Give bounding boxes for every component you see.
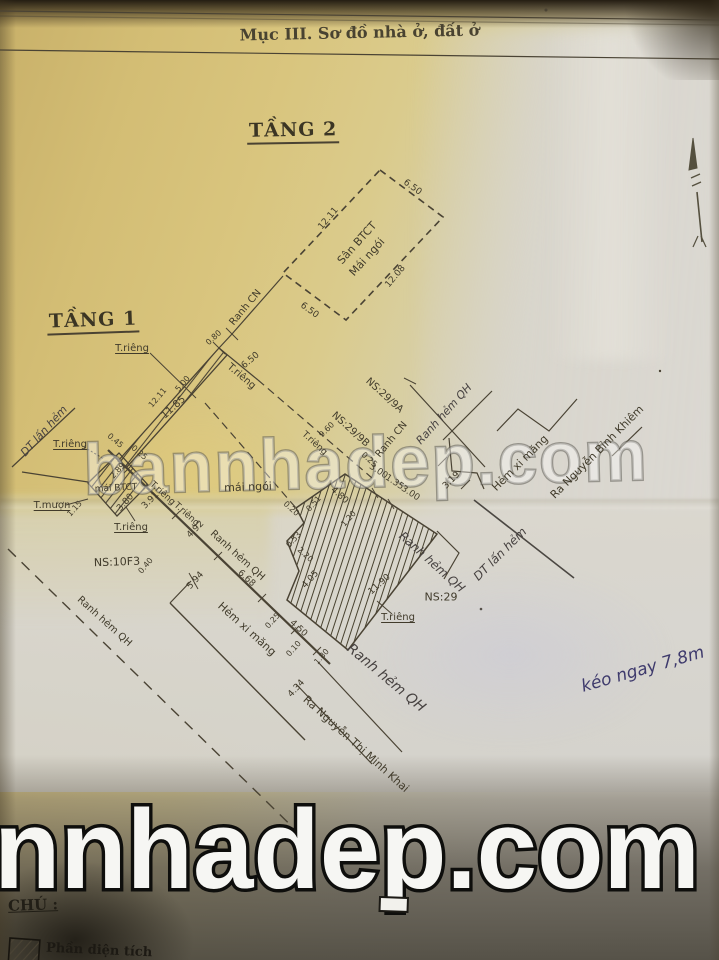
floor1-heading: TẦNG 1 (47, 307, 140, 335)
alley-to-street-line (318, 662, 402, 752)
t-rieng-line (219, 348, 258, 380)
site-plan-drawing: bannhadep.com nnhadep.com (0, 0, 719, 960)
floor2-heading: TẦNG 2 (247, 118, 340, 145)
header-rule-bottom (0, 50, 719, 59)
paper-speck (659, 370, 661, 372)
dt-lan-hem-line (12, 408, 75, 467)
dt-lan-hem-line2 (22, 472, 88, 482)
alley-corner2 (437, 531, 459, 579)
bottom-watermark: nnhadep.com (0, 787, 700, 912)
legend-heading: CHÚ : (8, 895, 59, 915)
scanned-document-photo: bannhadep.com nnhadep.com Mục III. Sơ đồ… (0, 0, 719, 960)
label-leader (150, 353, 196, 398)
paper-speck (545, 9, 548, 12)
ranh-cn-line (232, 276, 283, 334)
pen-boundary-line (474, 500, 574, 578)
hem-xi-mang-line (170, 603, 305, 740)
legend-hatch-swatch (8, 938, 40, 960)
center-watermark: bannhadep.com (83, 416, 650, 511)
paper-speck (480, 608, 483, 611)
floor2-outline (283, 170, 443, 320)
north-arrow-icon (689, 138, 706, 247)
alley-to-street-line2 (296, 684, 372, 764)
legend-empty-swatch (380, 897, 408, 912)
